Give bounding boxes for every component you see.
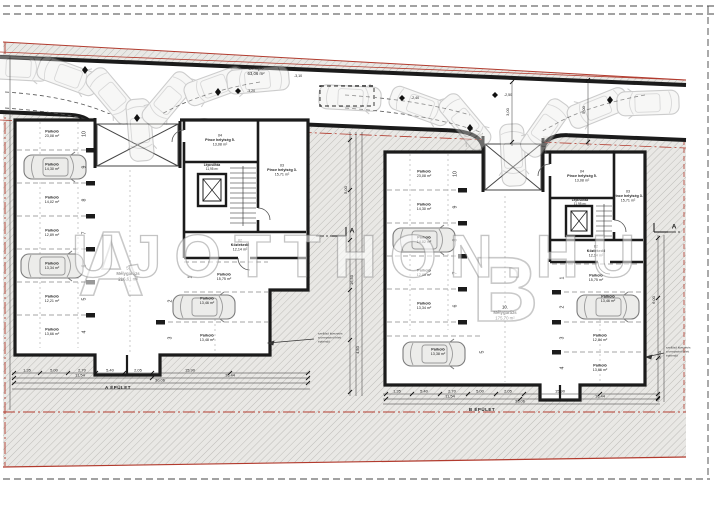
svg-text:6,00: 6,00 xyxy=(651,295,656,304)
svg-text:2,05: 2,05 xyxy=(134,368,143,373)
svg-text:5,40: 5,40 xyxy=(106,368,115,373)
svg-text:15,90: 15,90 xyxy=(555,389,566,394)
svg-text:30,06: 30,06 xyxy=(155,378,166,383)
svg-text:5,40: 5,40 xyxy=(420,389,429,394)
svg-text:5,00: 5,00 xyxy=(343,185,348,194)
svg-text:5,00: 5,00 xyxy=(476,389,485,394)
svg-text:16,44: 16,44 xyxy=(225,373,236,378)
drawing-sheet: 1,35 5,00 2,70 5,40 2,05 15,90 11,54 16,… xyxy=(0,0,720,510)
svg-text:5,00: 5,00 xyxy=(50,368,59,373)
svg-text:4,50: 4,50 xyxy=(355,345,360,354)
svg-text:1,35: 1,35 xyxy=(23,368,32,373)
svg-text:16,50: 16,50 xyxy=(349,274,354,285)
svg-text:16,44: 16,44 xyxy=(595,394,606,399)
svg-text:2,05: 2,05 xyxy=(504,389,513,394)
svg-text:11,54: 11,54 xyxy=(445,394,455,399)
building-a xyxy=(15,114,308,375)
svg-text:11,54: 11,54 xyxy=(75,373,85,378)
plan-linework: 1,35 5,00 2,70 5,40 2,05 15,90 11,54 16,… xyxy=(0,0,720,510)
svg-text:1,35: 1,35 xyxy=(393,389,402,394)
svg-text:15,90: 15,90 xyxy=(185,368,196,373)
svg-text:30,06: 30,06 xyxy=(515,399,526,404)
svg-text:3,00: 3,00 xyxy=(505,107,510,116)
svg-text:5,00: 5,00 xyxy=(581,105,586,114)
